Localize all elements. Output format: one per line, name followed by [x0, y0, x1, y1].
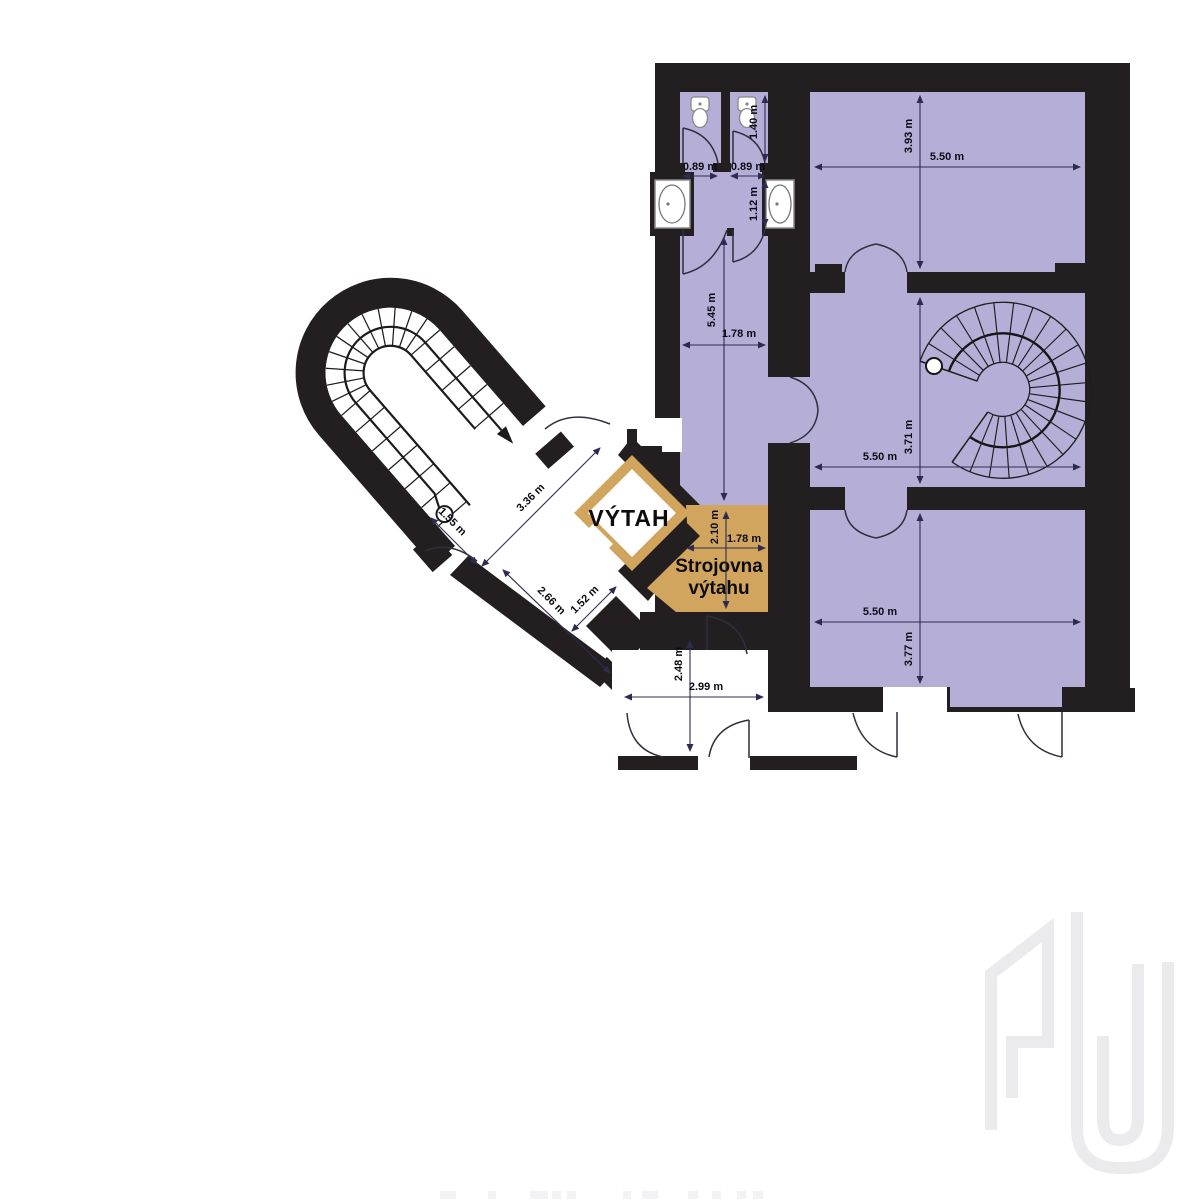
dim-wc-right-depth: 1.40 m: [748, 105, 760, 139]
dim-machine-room-width: 1.78 m: [727, 533, 761, 545]
door-opening-corridor-middle: [768, 377, 810, 443]
dim-room-middle-width: 5.50 m: [863, 451, 897, 463]
door-opening-exterior: [883, 687, 947, 712]
dim-vestibule-width: 2.99 m: [689, 681, 723, 693]
door-opening-top-middle: [845, 272, 907, 293]
dim-machine-room-height: 2.10 m: [709, 510, 721, 544]
dim-room-bottom-height: 3.77 m: [903, 632, 915, 666]
machine-room-label-line2: výtahu: [688, 578, 749, 599]
dim-corridor-width: 1.78 m: [722, 328, 756, 340]
room-bottom: [810, 510, 1085, 687]
dim-room-top-height: 3.93 m: [903, 119, 915, 153]
dim-room-top-width: 5.50 m: [930, 151, 964, 163]
spiral-stair-start-marker: [926, 358, 942, 374]
wall-step-bottom-right: [1108, 688, 1135, 712]
floor-plan-drawing: VÝTAH Strojovna výtahu: [0, 0, 1200, 1200]
door-opening-middle-bottom: [845, 487, 907, 510]
sink-left: [655, 180, 690, 228]
dim-wc-right-door: 0.89 m: [731, 161, 765, 173]
footer-watermark-marks: [440, 1191, 763, 1199]
gu-logo-watermark: [991, 912, 1168, 1168]
elevator-label: VÝTAH: [588, 504, 669, 531]
dim-room-bottom-width: 5.50 m: [863, 606, 897, 618]
dim-corridor-length: 5.45 m: [706, 293, 718, 327]
floor-plan-page: VÝTAH Strojovna výtahu: [0, 0, 1200, 1200]
dim-room-middle-height: 3.71 m: [903, 420, 915, 454]
dim-sink-bay-depth: 1.12 m: [748, 187, 760, 221]
room-bottom-recess: [950, 687, 1062, 707]
room-top: [810, 92, 1085, 272]
machine-room-label-line1: Strojovna: [675, 556, 763, 577]
dim-wc-left-door: 0.89 m: [683, 161, 717, 173]
sink-right: [766, 180, 794, 228]
toilet-left: [691, 97, 709, 128]
dim-vestibule-height: 2.48 m: [673, 647, 685, 681]
